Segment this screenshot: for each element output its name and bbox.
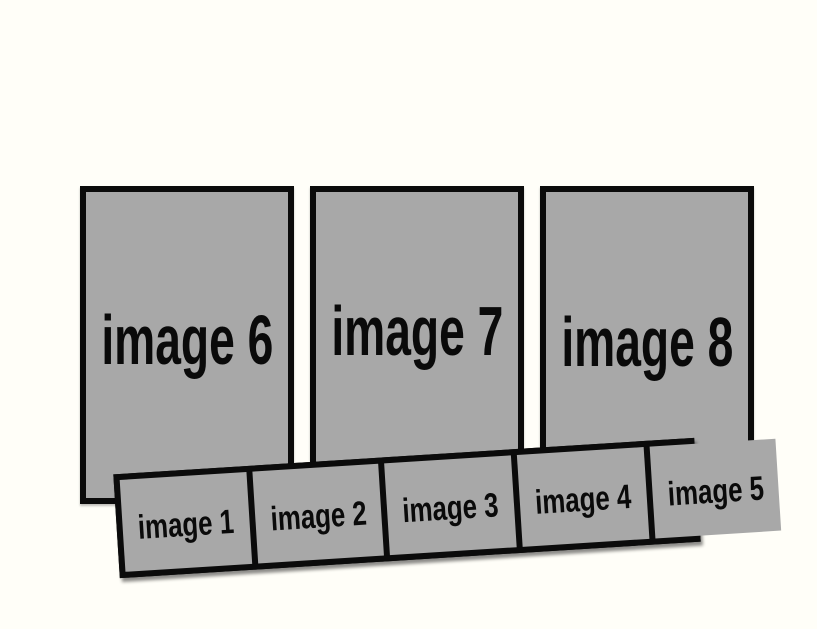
image-placeholder-2-label: image 2 [269,494,367,539]
image-placeholder-1-label: image 1 [137,502,235,547]
image-placeholder-5[interactable]: image 5 [649,439,781,539]
image-placeholder-7-label: image 7 [331,291,503,371]
image-placeholder-3[interactable]: image 3 [384,455,516,555]
image-placeholder-2[interactable]: image 2 [252,464,384,564]
image-placeholder-6-label: image 6 [101,300,273,380]
image-placeholder-4-label: image 4 [534,477,632,522]
image-placeholder-5-label: image 5 [666,469,764,514]
image-placeholder-1[interactable]: image 1 [120,472,252,572]
collage-template-canvas: image 6 image 7 image 8 image 1 image 2 … [0,0,817,629]
image-placeholder-8-label: image 8 [561,302,733,382]
image-placeholder-3-label: image 3 [401,486,499,531]
image-placeholder-4[interactable]: image 4 [517,447,649,547]
image-placeholder-6[interactable]: image 6 [80,186,294,504]
